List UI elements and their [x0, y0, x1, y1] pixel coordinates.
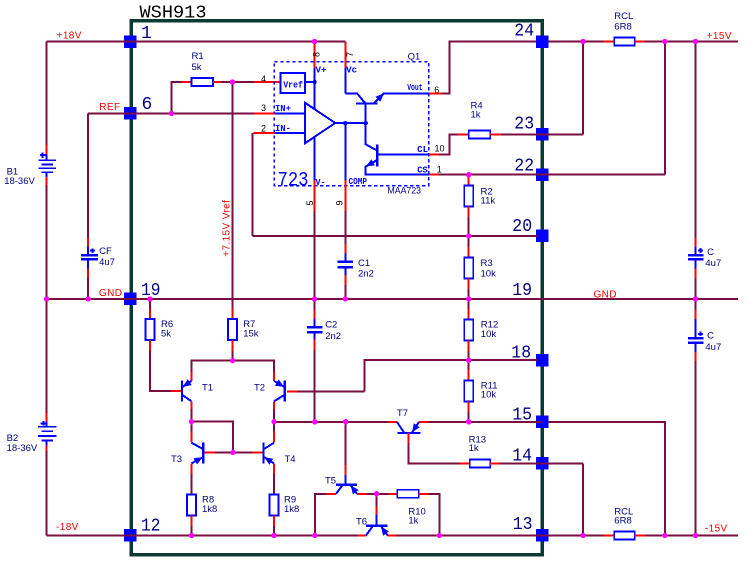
svg-text:T2: T2 [254, 382, 265, 393]
svg-text:23: 23 [514, 115, 534, 135]
svg-text:T3: T3 [171, 454, 182, 465]
svg-text:T1: T1 [202, 382, 213, 393]
svg-text:1k8: 1k8 [202, 504, 217, 515]
svg-text:MAA723: MAA723 [388, 186, 422, 197]
svg-text:3: 3 [261, 103, 266, 113]
svg-text:5k: 5k [161, 328, 171, 339]
svg-text:4u7: 4u7 [99, 257, 115, 268]
svg-text:22: 22 [514, 157, 534, 177]
svg-text:C: C [707, 247, 714, 258]
svg-text:IN+: IN+ [275, 104, 291, 114]
svg-text:2n2: 2n2 [325, 331, 341, 342]
svg-text:10k: 10k [481, 268, 497, 279]
svg-text:Vout: Vout [407, 83, 422, 93]
svg-text:12: 12 [141, 517, 161, 537]
svg-text:6R8: 6R8 [614, 516, 631, 527]
svg-text:Vref: Vref [283, 81, 303, 91]
svg-text:18-36V: 18-36V [4, 176, 35, 187]
svg-text:+7.15V Vref: +7.15V Vref [221, 200, 232, 257]
svg-text:2: 2 [261, 123, 266, 133]
svg-text:RCL: RCL [614, 11, 633, 22]
svg-text:Vc: Vc [346, 66, 357, 76]
svg-text:CS: CS [417, 166, 428, 176]
svg-text:4: 4 [261, 74, 266, 84]
svg-text:1k8: 1k8 [284, 504, 299, 515]
svg-text:1k: 1k [471, 110, 481, 121]
svg-text:5k: 5k [192, 62, 202, 73]
svg-text:V+: V+ [316, 66, 327, 76]
svg-text:4u7: 4u7 [705, 342, 721, 353]
svg-text:COMP: COMP [349, 177, 368, 187]
svg-text:Q1: Q1 [408, 52, 421, 63]
svg-text:7: 7 [345, 52, 355, 57]
svg-text:-18V: -18V [56, 522, 79, 533]
svg-text:5: 5 [305, 200, 315, 205]
svg-text:10k: 10k [481, 390, 497, 401]
svg-text:-15V: -15V [705, 523, 728, 534]
svg-text:IN-: IN- [275, 124, 291, 134]
svg-text:24: 24 [514, 22, 534, 42]
svg-text:15k: 15k [243, 328, 259, 339]
svg-text:T7: T7 [397, 408, 408, 419]
svg-text:T5: T5 [325, 475, 336, 486]
svg-text:GND: GND [99, 288, 122, 299]
svg-text:C2: C2 [325, 320, 337, 331]
svg-text:CF: CF [99, 246, 112, 257]
svg-text:13: 13 [513, 515, 533, 535]
svg-text:2n2: 2n2 [358, 268, 374, 279]
svg-text:1k: 1k [469, 443, 479, 454]
svg-text:+15V: +15V [707, 31, 732, 42]
svg-text:6: 6 [142, 95, 153, 115]
svg-text:10k: 10k [481, 329, 497, 340]
svg-text:9: 9 [335, 200, 345, 205]
svg-text:R1: R1 [192, 51, 204, 62]
svg-text:19: 19 [512, 281, 532, 301]
svg-text:11k: 11k [481, 196, 496, 207]
svg-text:1: 1 [437, 165, 442, 175]
svg-text:8: 8 [311, 52, 321, 57]
svg-text:CL: CL [417, 145, 428, 155]
svg-text:REF: REF [99, 102, 120, 113]
svg-text:+18V: +18V [57, 31, 82, 42]
svg-text:723: 723 [278, 169, 309, 192]
svg-text:10: 10 [435, 144, 445, 154]
svg-text:T6: T6 [356, 517, 367, 528]
svg-text:4u7: 4u7 [705, 258, 721, 269]
svg-text:18-36V: 18-36V [7, 443, 38, 454]
svg-text:1k: 1k [408, 515, 418, 526]
svg-text:T4: T4 [285, 454, 296, 465]
svg-text:6R8: 6R8 [614, 21, 631, 32]
svg-text:V-: V- [316, 178, 326, 188]
svg-text:20: 20 [512, 217, 532, 237]
svg-text:C: C [707, 331, 714, 342]
svg-text:GND: GND [594, 289, 617, 300]
